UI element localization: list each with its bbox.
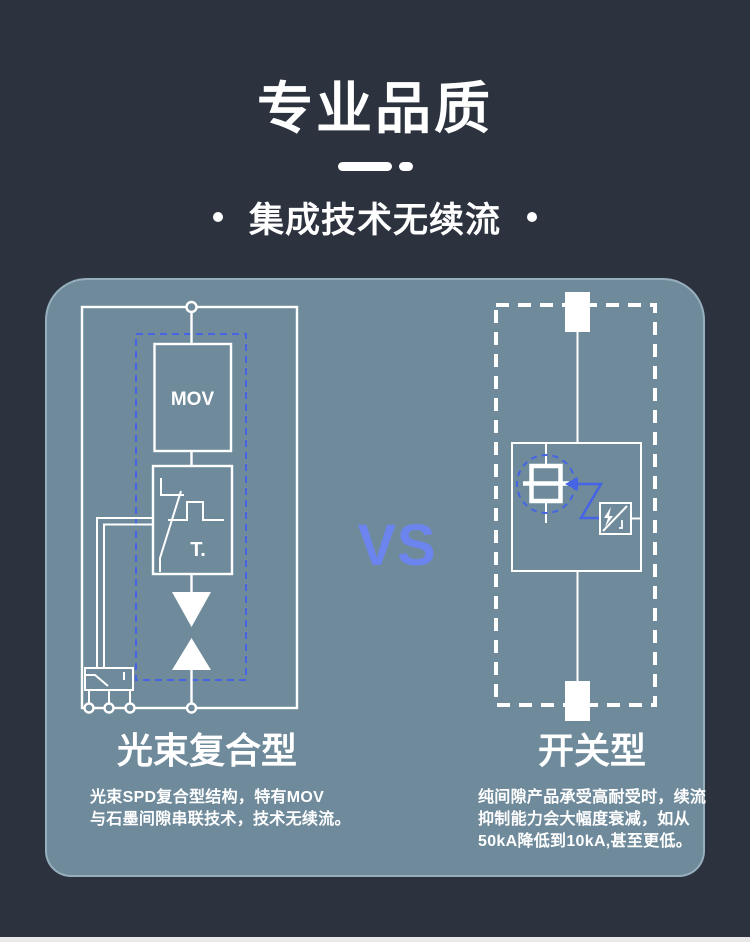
thermal-label: T.	[190, 539, 206, 561]
right-circuit-diagram	[496, 292, 655, 721]
subtitle-text: 集成技术无续流	[249, 192, 501, 243]
right-type-desc: 纯间隙产品承受高耐受时，续流 抑制能力会大幅度衰减，如从 50kA降低到10kA…	[478, 787, 713, 853]
remote-switch-box	[85, 668, 133, 690]
left-type-desc: 光束SPD复合型结构，特有MOV 与石墨间隙串联技术，技术无续流。	[90, 787, 360, 831]
bullet-dot-left-icon	[213, 212, 223, 222]
top-terminal-block	[565, 292, 590, 332]
gap-module-box	[512, 443, 641, 571]
mov-label: MOV	[171, 389, 215, 410]
signal-wires	[97, 518, 153, 668]
trigger-diagonal-line	[603, 506, 627, 531]
trigger-hook-mark	[619, 520, 622, 528]
bottom-terminal-circle	[85, 704, 94, 713]
left-desc-line: 与石墨间隙串联技术，技术无续流。	[90, 809, 360, 831]
right-desc-line: 纯间隙产品承受高耐受时，续流	[478, 787, 713, 809]
bottom-terminal-circle	[187, 704, 196, 713]
right-desc-line: 抑制能力会大幅度衰减，如从	[478, 809, 713, 831]
left-desc-line: 光束SPD复合型结构，特有MOV	[90, 787, 360, 809]
page-title: 专业品质	[0, 80, 750, 138]
bullet-dot-right-icon	[527, 212, 537, 222]
bottom-terminal-block	[565, 681, 590, 721]
right-desc-line: 50kA降低到10kA,甚至更低。	[478, 831, 713, 853]
right-type-name: 开关型	[447, 730, 737, 772]
arrow-left-icon	[565, 477, 578, 491]
switch-contact-icon	[85, 672, 124, 686]
divider-dot-icon	[399, 162, 413, 171]
spark-gap-triangle-up-icon	[172, 638, 211, 670]
title-divider	[0, 162, 750, 171]
bottom-terminal-circle	[105, 704, 114, 713]
left-circuit-diagram: MOV T.	[82, 302, 297, 713]
trigger-zigzag-line	[578, 484, 601, 518]
divider-dash-icon	[338, 162, 392, 171]
next-section-strip	[0, 937, 750, 942]
top-terminal-circle	[187, 302, 197, 312]
vs-text: VS	[342, 516, 452, 576]
comparison-panel: MOV T.	[45, 278, 705, 877]
left-type-name: 光束复合型	[67, 730, 347, 772]
disconnector-blade-icon	[160, 491, 181, 572]
spark-gap-triangle-down-icon	[172, 592, 211, 627]
subtitle-row: 集成技术无续流	[0, 196, 750, 238]
bottom-terminal-circle	[126, 704, 135, 713]
